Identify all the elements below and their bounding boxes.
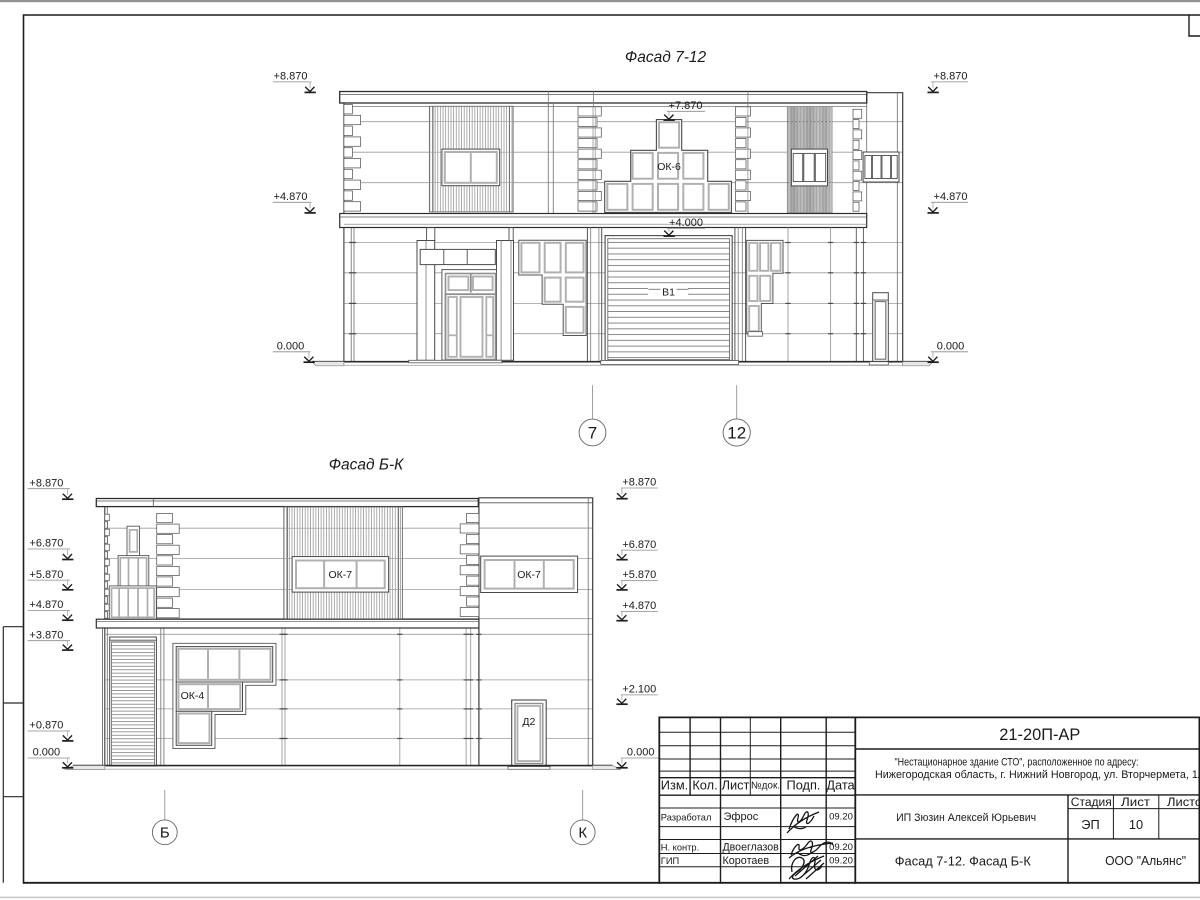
- svg-text:Разработал: Разработал: [661, 813, 712, 823]
- svg-text:+4.870: +4.870: [934, 191, 968, 203]
- svg-text:+8.870: +8.870: [622, 477, 656, 489]
- svg-text:0.000: 0.000: [937, 341, 965, 353]
- svg-text:+4.870: +4.870: [274, 191, 308, 203]
- svg-text:Стадия: Стадия: [1071, 797, 1112, 809]
- svg-text:+4.870: +4.870: [622, 600, 656, 612]
- svg-text:10: 10: [1129, 817, 1143, 832]
- svg-text:Лист: Лист: [1121, 797, 1151, 809]
- svg-text:0.000: 0.000: [627, 747, 655, 759]
- svg-text:+6.870: +6.870: [29, 538, 63, 550]
- svg-text:Н. контр.: Н. контр.: [661, 843, 699, 853]
- svg-text:Лист: Лист: [722, 778, 750, 793]
- svg-text:Подп.: Подп.: [787, 778, 821, 793]
- svg-text:В1: В1: [662, 287, 675, 299]
- svg-text:Коротаев: Коротаев: [723, 855, 770, 867]
- svg-text:№док.: №док.: [751, 781, 780, 792]
- svg-text:ОК-7: ОК-7: [328, 569, 352, 581]
- svg-text:12: 12: [727, 424, 746, 443]
- svg-text:+5.870: +5.870: [29, 569, 63, 581]
- svg-text:ГИП: ГИП: [661, 856, 679, 866]
- svg-text:Фасад 7-12: Фасад 7-12: [625, 49, 707, 66]
- svg-text:ООО "Альянс": ООО "Альянс": [1105, 854, 1186, 868]
- svg-text:0.000: 0.000: [33, 747, 61, 759]
- svg-text:Дата: Дата: [826, 778, 855, 793]
- svg-text:+7.870: +7.870: [669, 100, 703, 112]
- svg-text:ОК-7: ОК-7: [517, 569, 541, 581]
- svg-text:09.20: 09.20: [829, 856, 853, 867]
- svg-text:+8.870: +8.870: [274, 71, 308, 83]
- svg-text:ЭП: ЭП: [1081, 817, 1099, 832]
- svg-text:+8.870: +8.870: [934, 71, 968, 83]
- svg-text:"Нестационарное здание СТО", р: "Нестационарное здание СТО", расположенн…: [895, 756, 1139, 768]
- svg-text:Нижегородская область, г. Нижн: Нижегородская область, г. Нижний Новгоро…: [875, 769, 1200, 781]
- svg-text:+4.870: +4.870: [29, 599, 63, 611]
- svg-text:21-20П-АР: 21-20П-АР: [999, 726, 1080, 744]
- svg-text:7: 7: [588, 424, 597, 443]
- svg-text:Д2: Д2: [522, 716, 535, 728]
- svg-text:Двоеглазов: Двоеглазов: [723, 842, 780, 854]
- svg-text:Изм.: Изм.: [661, 778, 688, 793]
- svg-text:+8.870: +8.870: [29, 477, 63, 489]
- svg-text:Б: Б: [160, 825, 170, 842]
- svg-text:К: К: [578, 825, 587, 842]
- svg-text:Фасад 7-12. Фасад Б-К: Фасад 7-12. Фасад Б-К: [895, 854, 1031, 869]
- svg-text:ОК-6: ОК-6: [657, 161, 681, 173]
- svg-text:09.20: 09.20: [829, 812, 853, 823]
- svg-text:Эфрос: Эфрос: [724, 811, 759, 823]
- svg-text:+5.870: +5.870: [622, 569, 656, 581]
- svg-text:Кол.: Кол.: [692, 778, 717, 793]
- svg-text:0.000: 0.000: [277, 341, 305, 353]
- svg-text:+0.870: +0.870: [29, 720, 63, 732]
- svg-text:+6.870: +6.870: [622, 539, 656, 551]
- svg-text:ИП Зюзин Алексей Юрьевич: ИП Зюзин Алексей Юрьевич: [896, 812, 1036, 824]
- svg-text:+3.870: +3.870: [29, 629, 63, 641]
- svg-text:+2.100: +2.100: [622, 684, 656, 696]
- svg-text:Фасад Б-К: Фасад Б-К: [329, 457, 404, 474]
- svg-text:+4.000: +4.000: [669, 217, 703, 229]
- svg-text:Листов: Листов: [1167, 797, 1200, 809]
- svg-text:ОК-4: ОК-4: [181, 690, 205, 702]
